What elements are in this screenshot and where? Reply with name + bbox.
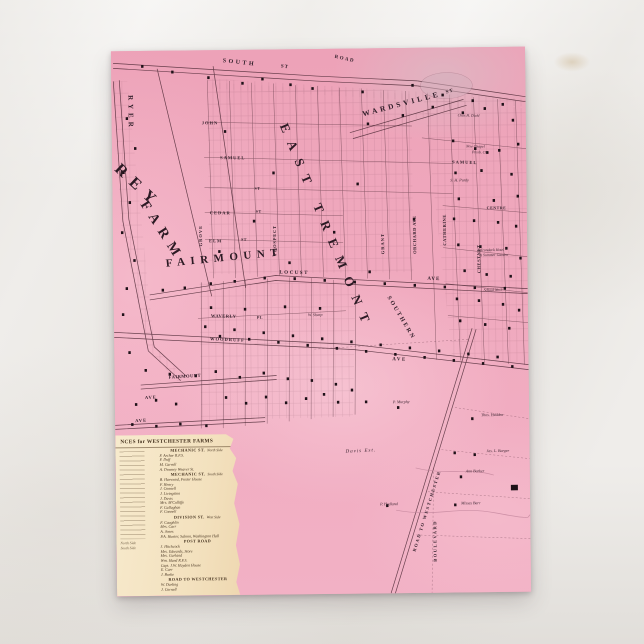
map-label-barker: Ann Barker — [466, 469, 485, 473]
map-label-catherine: CATHERINE — [443, 214, 448, 245]
reference-card-body: North SideSouth Side MECHANIC ST.North S… — [115, 447, 244, 594]
map-label-st-mid: ST — [254, 187, 260, 191]
map-label-samuel-e: SAMUEL — [452, 161, 477, 166]
ref-section-street: MECHANIC ST. — [171, 472, 206, 477]
map-label-cedar: CEDAR — [210, 211, 231, 216]
map-label-chapel-1: New Chapel — [466, 145, 485, 149]
ref-section: MECHANIC ST.North SideF. Archer R.F.S.F.… — [152, 448, 240, 472]
map-label-cedar-st: ST — [256, 210, 262, 214]
map-label-locust: LOCUST — [279, 270, 309, 276]
map-label-barger: Jas. L. Barger — [486, 449, 509, 453]
map-label-fairmount-st: FAIRMOUNT — [169, 374, 202, 381]
map-label-waverly-pl: PL — [257, 316, 263, 320]
map-label-samuel-w: SAMUEL — [220, 156, 245, 161]
map-label-south-st: ST — [281, 64, 290, 70]
reference-sections: MECHANIC ST.North SideF. Archer R.F.S.F.… — [152, 447, 244, 593]
map-label-adirondack-2: & Summer Garden — [479, 254, 508, 258]
map-label-ave-low: AVE — [145, 395, 157, 400]
map-label-grant: GRANT — [381, 233, 386, 254]
map-label-elm: ELM — [209, 239, 222, 244]
illegible-text-column — [119, 451, 145, 539]
map-label-locust-ave: AVE — [427, 277, 440, 282]
ref-section-street: POST ROAD — [184, 538, 211, 543]
ref-section-street: DIVISION ST. — [174, 514, 205, 519]
map-label-john: JOHN — [202, 121, 219, 126]
map-label-hedden: Thos. Hedden — [481, 413, 503, 417]
ref-section-side: West Side — [207, 515, 221, 519]
map-label-woodruff: WOODRUFF — [210, 337, 245, 343]
map-label-wardsville-st: ST — [445, 89, 454, 96]
postcard: SOUTHSTROADWARDSVILLESTEAST TREMONTRYERR… — [111, 47, 531, 597]
map-label-prospect: PROSPECT — [273, 225, 278, 255]
marble-background: { "postcard": { "description": "Vintage … — [0, 0, 644, 644]
map-label-boulevard: BOULEVARD — [433, 520, 438, 562]
ref-section: POST ROADJ. HitchcockMrs. Edwards, Store… — [153, 539, 241, 577]
ref-section: MECHANIC ST.South SideB. Harwood, Foster… — [153, 472, 241, 515]
map-label-south: SOUTH — [222, 58, 256, 68]
map-label-hedland: P. Hedland — [380, 502, 398, 506]
map-label-elm-st: ST — [241, 238, 247, 242]
ref-entry: J. Cornell — [154, 587, 242, 593]
map-label-murphy: P. Murphy — [393, 400, 410, 404]
map-label-ryer: RYER — [126, 95, 133, 131]
ref-section: DIVISION ST.West SideF. CaughlinMrs. Car… — [153, 515, 241, 539]
map-label-waverly: WAVERLY — [211, 314, 237, 319]
ref-section: ROAD TO WESTCHESTERW. DarlingJ. Cornell — [154, 577, 242, 592]
ref-section-street: MECHANIC ST. — [170, 447, 205, 452]
map-label-wardsville: WARDSVILLE — [362, 90, 442, 118]
ref-left-column: North SideSouth Side — [115, 448, 154, 594]
map-label-chapel-2: Presb. Ch. — [472, 151, 488, 155]
map-label-school: School No.2 — [484, 289, 503, 293]
map-label-barr: Misses Barr — [461, 501, 480, 505]
map-label-centre: CENTRE — [487, 206, 507, 210]
map-label-southern: SOUTHERN — [386, 295, 416, 341]
map-label-east-tremont: EAST TREMONT — [278, 121, 376, 333]
map-label-ave-lowest: AVE — [135, 419, 147, 424]
map-label-diehl: Chas H. Diehl — [458, 114, 480, 118]
map-label-grove: GROVE — [199, 225, 204, 247]
map-label-ave-main: AVE — [392, 357, 407, 363]
map-label-road: ROAD — [334, 55, 355, 64]
map-label-sharp: W. Sharp — [308, 313, 323, 317]
map-label-farm: FARM — [137, 199, 186, 265]
ref-section-street: ROAD TO WESTCHESTER — [168, 576, 227, 582]
map-label-davis-est: Davis Est. — [345, 448, 376, 454]
map-label-orchard-ave: ORCHARD AVE — [413, 215, 418, 254]
reference-card: NCES for WESTCHESTER FARMS North SideSou… — [115, 434, 244, 596]
map-label-purdy: S. H. Purdy — [450, 178, 469, 182]
ref-section-side: North Side — [207, 448, 223, 452]
map-area: SOUTHSTROADWARDSVILLESTEAST TREMONTRYERR… — [111, 47, 531, 597]
ref-left-fragment: South Side — [121, 546, 154, 552]
ref-section-side: South Side — [207, 472, 222, 476]
